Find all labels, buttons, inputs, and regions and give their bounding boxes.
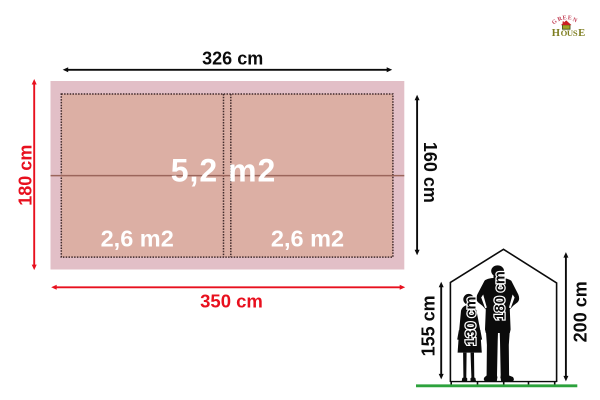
svg-text:2,6 m2: 2,6 m2 bbox=[101, 226, 174, 252]
svg-text:160 cm: 160 cm bbox=[420, 142, 440, 203]
svg-text:E: E bbox=[578, 28, 585, 39]
svg-text:180 cm: 180 cm bbox=[493, 271, 509, 320]
svg-text:350 cm: 350 cm bbox=[200, 291, 263, 312]
svg-text:130 cm: 130 cm bbox=[464, 297, 480, 346]
svg-text:180 cm: 180 cm bbox=[15, 145, 35, 206]
svg-text:155 cm: 155 cm bbox=[419, 295, 439, 356]
svg-text:200 cm: 200 cm bbox=[571, 281, 591, 342]
svg-text:5,2 m2: 5,2 m2 bbox=[171, 153, 277, 189]
svg-text:326 cm: 326 cm bbox=[202, 49, 263, 69]
svg-text:2,6 m2: 2,6 m2 bbox=[271, 226, 344, 252]
svg-text:H: H bbox=[552, 28, 561, 39]
